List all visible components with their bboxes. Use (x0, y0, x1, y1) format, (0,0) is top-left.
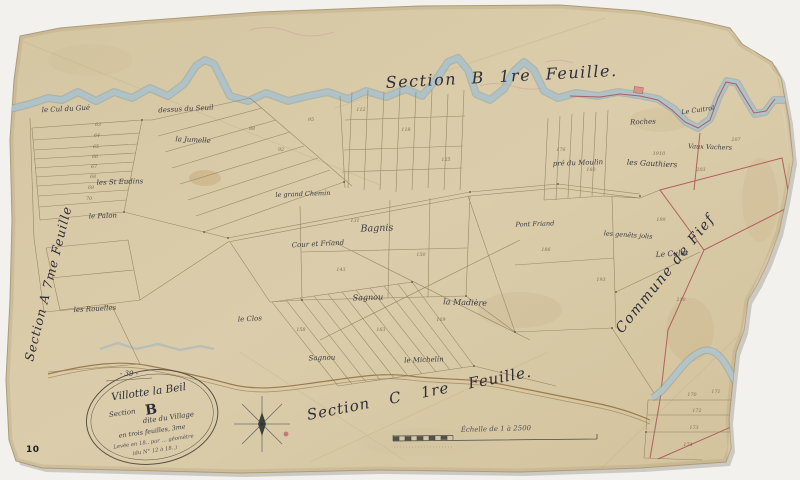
compass-rose (234, 396, 290, 452)
parcel-number: 171 (711, 389, 720, 395)
parcel-number: 170 (687, 392, 696, 398)
place-label: la Madière (443, 297, 487, 308)
parcel-number: 69 (88, 185, 94, 191)
parcel-number: 180 (586, 167, 595, 173)
place-label: Sagnou (353, 292, 384, 302)
scanned-map-page: Échelle de 1 à 2500 Section B 1re Feuill… (0, 0, 800, 480)
parcel-number: 1910 (653, 151, 667, 157)
place-label: les St Eudins (97, 177, 144, 187)
compass-center (261, 423, 264, 426)
parcel-number: 158 (296, 327, 305, 333)
red-wax-mark (284, 432, 289, 437)
parcel-number: 173 (689, 425, 698, 431)
parcel-number: 193 (596, 277, 605, 283)
page-number-stamp: 10 (26, 445, 40, 455)
parcel-number: 63 (95, 122, 101, 128)
place-label: Roches (629, 118, 656, 127)
parcel-number: 95 (308, 117, 314, 123)
place-label: Pont Friand (514, 219, 554, 228)
place-label: Bagnis (359, 222, 393, 234)
cadastral-map-sheet: Échelle de 1 à 2500 Section B 1re Feuill… (0, 0, 800, 480)
scale-bar-label: Échelle de 1 à 2500 (460, 423, 532, 434)
parcel-number: 65 (93, 144, 99, 150)
parcel-number: 199 (656, 217, 665, 223)
parcel-number: 118 (401, 127, 410, 133)
parcel-number: 169 (436, 317, 445, 323)
parcel-number: 131 (350, 218, 359, 224)
place-label: le Michelin (404, 355, 444, 364)
parcel-number: 68 (90, 174, 96, 180)
parcel-number: 143 (336, 267, 345, 273)
parcel-number: 125 (441, 157, 450, 163)
parcel-number: 163 (376, 327, 385, 333)
parcel-number: 66 (92, 154, 98, 160)
parcel-number: 112 (356, 107, 365, 113)
place-label: le Palon (89, 211, 118, 220)
parcel-number: 210 (675, 297, 685, 303)
parcel-number: 176 (556, 147, 565, 153)
parcel-number: 67 (91, 164, 98, 170)
building-symbol (634, 87, 644, 94)
place-label: le Clos (238, 314, 263, 323)
parcel-number: 64 (94, 133, 100, 139)
parcel-number: 174 (683, 442, 692, 448)
parcel-number: 207 (730, 137, 741, 143)
parcel-number: 88 (249, 126, 255, 132)
parcel-number: 203 (695, 167, 705, 173)
folio-number: - 39 - (120, 370, 139, 378)
place-label: Vaux Vachers (688, 142, 733, 152)
place-label: Sagnou (308, 354, 335, 363)
parcel-number: 150 (416, 252, 425, 258)
parcel-number: 92 (278, 147, 284, 153)
parcel-number: 186 (541, 247, 550, 253)
parcel-number: 70 (86, 196, 92, 202)
parcel-number: 172 (692, 408, 701, 414)
